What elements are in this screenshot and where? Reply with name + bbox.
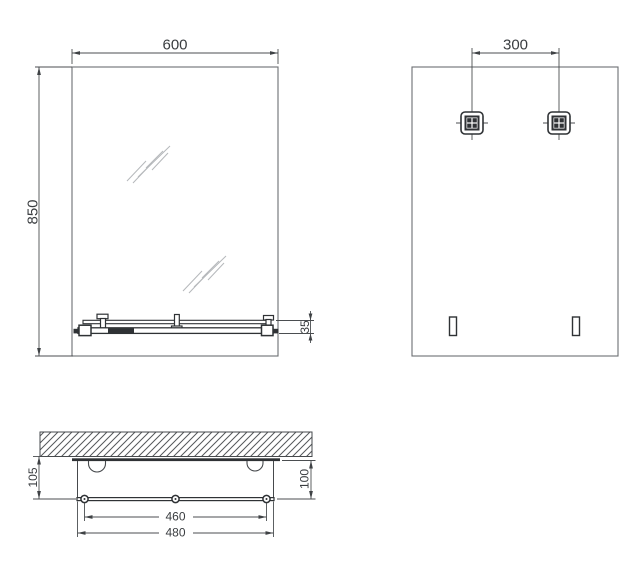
- shelf-grip: [108, 328, 134, 333]
- front-view: 600 850 35: [25, 37, 315, 357]
- shelf-left-nub: [74, 329, 79, 334]
- bracket-hole: [473, 118, 477, 122]
- dim-arrow: [259, 515, 267, 519]
- dim-arrow: [309, 314, 313, 321]
- dim-arrow: [309, 491, 313, 499]
- dim-shelf-width-label: 480: [165, 526, 185, 540]
- bracket-hole: [467, 118, 471, 122]
- dim-arrow: [37, 67, 41, 75]
- mirror-back-outline: [412, 67, 618, 356]
- dim-depth-from-wall-label: 105: [26, 467, 40, 487]
- bracket-cutout-left: [89, 461, 106, 472]
- back-view: 300: [412, 37, 618, 357]
- shelf-left-end-cap: [79, 325, 91, 335]
- bracket-hole: [554, 118, 558, 122]
- rail-connector-dot: [84, 498, 86, 500]
- dim-arrow: [266, 531, 274, 535]
- shelf-center-post: [175, 315, 180, 327]
- dim-arrow: [309, 461, 313, 469]
- plan-view: 105 100 460 480: [26, 432, 316, 540]
- dim-arrow: [37, 457, 41, 465]
- bracket-cutout-right: [247, 461, 263, 471]
- dim-arrow: [85, 515, 93, 519]
- mirror-top-edge: [72, 458, 280, 461]
- wall-section: [40, 432, 312, 457]
- bracket-hole: [467, 124, 471, 128]
- dim-arrow: [37, 348, 41, 356]
- shelf-front-rail: [78, 328, 273, 334]
- technical-drawing-canvas: 600 850 35: [0, 0, 632, 571]
- dim-arrow: [37, 491, 41, 499]
- mirror-front-outline: [72, 67, 278, 356]
- rail-connector-dot: [175, 498, 177, 500]
- dim-arrow: [72, 51, 80, 55]
- dim-arrow: [472, 51, 480, 55]
- bracket-hole: [473, 124, 477, 128]
- shelf-right-nub: [273, 329, 278, 334]
- dim-front-height-label: 850: [25, 199, 42, 224]
- dim-bracket-spacing-label: 300: [503, 37, 528, 54]
- dim-arrow: [551, 51, 559, 55]
- rail-connector-dot: [266, 498, 268, 500]
- shelf-left-post: [101, 319, 106, 329]
- dim-depth-from-mirror-label: 100: [298, 469, 312, 489]
- bracket-hole: [560, 124, 564, 128]
- technical-drawing: 600 850 35: [0, 0, 632, 571]
- shelf-right-end-cap: [262, 325, 274, 335]
- dim-shelf-thickness-label: 35: [298, 320, 312, 334]
- dim-arrow: [78, 531, 86, 535]
- bottom-slot-right: [573, 317, 580, 336]
- bracket-hole: [560, 118, 564, 122]
- dim-bracket-span-label: 460: [165, 510, 185, 524]
- bottom-slot-left: [450, 317, 457, 336]
- dim-front-width-label: 600: [162, 37, 187, 54]
- bracket-hole: [554, 124, 558, 128]
- dim-arrow: [270, 51, 278, 55]
